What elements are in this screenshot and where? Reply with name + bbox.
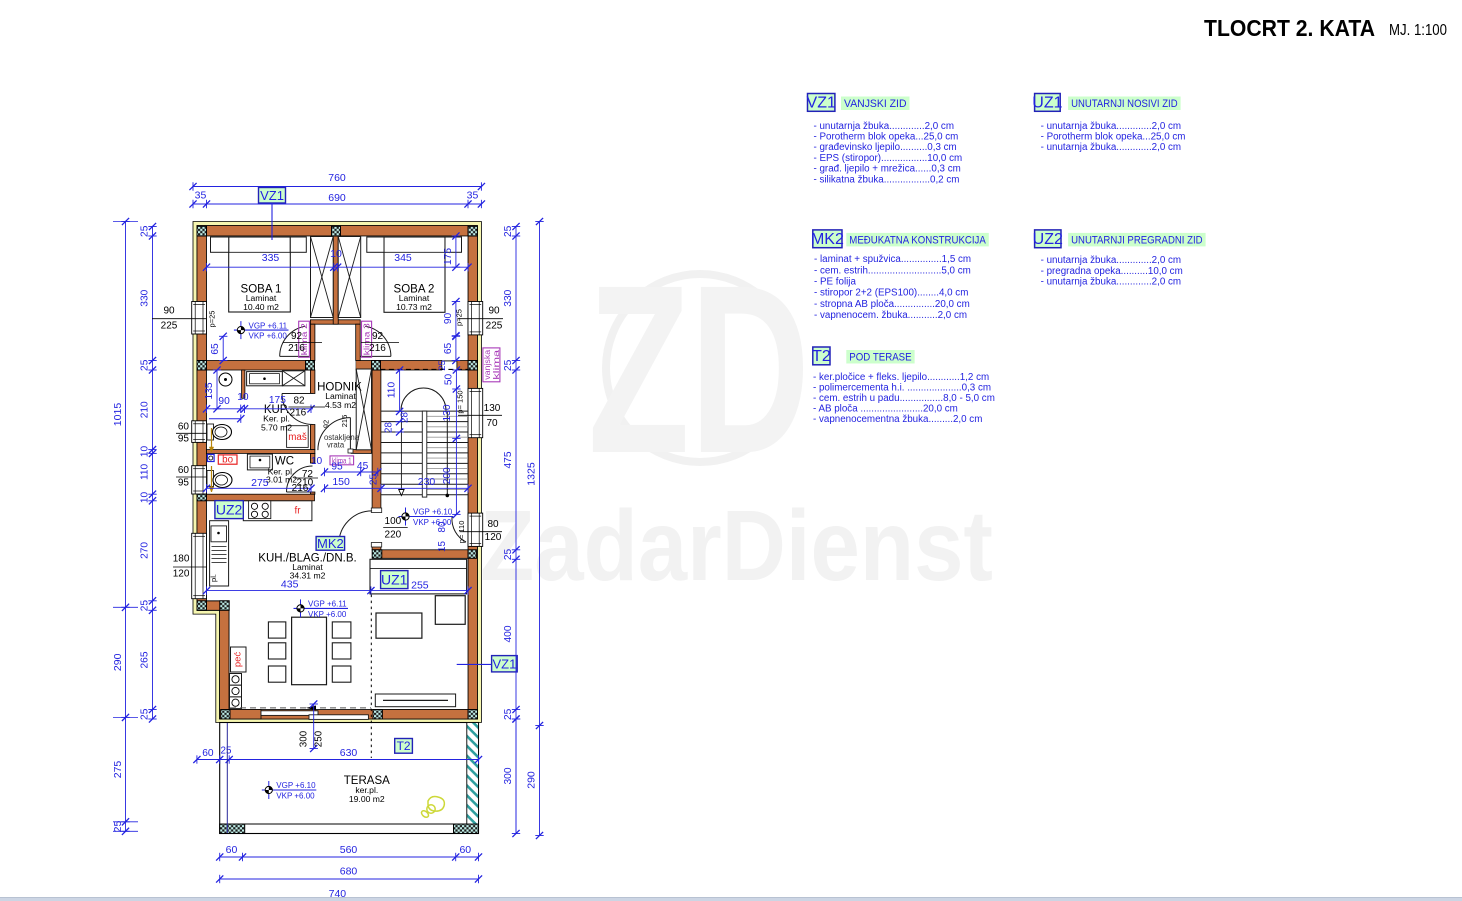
svg-text:25: 25: [139, 708, 150, 720]
svg-text:10: 10: [330, 248, 342, 260]
svg-text:VKP +6.00: VKP +6.00: [308, 610, 347, 619]
svg-text:25: 25: [221, 746, 232, 757]
svg-text:290: 290: [525, 771, 537, 789]
svg-text:VZ1: VZ1: [807, 95, 836, 112]
svg-text:UZ2: UZ2: [1033, 231, 1063, 248]
svg-text:VANJSKI ZID: VANJSKI ZID: [844, 98, 907, 110]
svg-text:330: 330: [139, 289, 150, 306]
svg-text:28: 28: [384, 422, 395, 433]
svg-text:216: 216: [340, 415, 349, 428]
svg-text:MJ. 1:100: MJ. 1:100: [1389, 22, 1447, 39]
svg-text:300: 300: [503, 767, 514, 784]
svg-text:VKP +6.00: VKP +6.00: [276, 791, 315, 800]
svg-text:150: 150: [332, 476, 350, 488]
svg-text:TLOCRT 2. KATA: TLOCRT 2. KATA: [1204, 15, 1375, 41]
svg-text:maš: maš: [288, 432, 307, 443]
svg-text:15: 15: [437, 541, 448, 552]
svg-text:275: 275: [112, 761, 124, 779]
svg-text:25: 25: [437, 360, 448, 371]
svg-text:vrata: vrata: [327, 441, 345, 450]
svg-text:UNUTARNJI PREGRADNI ZID: UNUTARNJI PREGRADNI ZID: [1071, 235, 1203, 247]
svg-text:135: 135: [204, 382, 215, 399]
svg-text:290: 290: [112, 653, 124, 671]
svg-text:65: 65: [443, 343, 454, 355]
svg-text:35: 35: [467, 190, 479, 202]
svg-text:4.53 m2: 4.53 m2: [325, 400, 356, 410]
svg-text:p=25: p=25: [455, 309, 464, 326]
svg-text:230: 230: [418, 476, 436, 488]
svg-text:216: 216: [292, 483, 309, 494]
svg-text:- ker.pločice + fleks. ljepilo: - ker.pločice + fleks. ljepilo..........…: [813, 372, 989, 383]
svg-text:- Porotherm blok opeka...25,0: - Porotherm blok opeka...25,0 cm: [1041, 132, 1186, 143]
svg-text:60: 60: [202, 748, 214, 759]
svg-text:VGP +6.11: VGP +6.11: [249, 321, 288, 330]
svg-text:220: 220: [385, 530, 402, 541]
svg-text:92: 92: [322, 420, 331, 428]
svg-text:216: 216: [369, 343, 386, 354]
svg-text:- unutarnja žbuka.............: - unutarnja žbuka.............2,0 cm: [814, 121, 955, 132]
svg-text:1325: 1325: [525, 462, 537, 486]
svg-text:345: 345: [394, 252, 412, 264]
svg-text:130: 130: [442, 404, 453, 421]
svg-text:VKP +6.00: VKP +6.00: [249, 332, 288, 341]
svg-text:T2: T2: [812, 348, 831, 365]
svg-text:- vapnenocementna žbuka.......: - vapnenocementna žbuka.........2,0 cm: [813, 414, 982, 425]
svg-text:25: 25: [503, 225, 514, 237]
svg-text:28: 28: [400, 412, 411, 423]
svg-text:175: 175: [269, 395, 286, 406]
svg-text:peć: peć: [233, 652, 244, 668]
svg-text:200: 200: [442, 467, 453, 484]
svg-text:- građevinsko ljepilo.........: - građevinsko ljepilo..........0,3 cm: [814, 142, 957, 153]
svg-text:90: 90: [443, 313, 454, 325]
svg-text:60: 60: [178, 465, 190, 476]
svg-text:p= 110: p= 110: [457, 521, 466, 544]
svg-text:25: 25: [139, 359, 150, 371]
svg-text:100: 100: [385, 516, 402, 527]
svg-text:- unutarnja žbuka.............: - unutarnja žbuka.............2,0 cm: [1041, 142, 1182, 153]
svg-text:80: 80: [487, 519, 499, 530]
svg-text:475: 475: [503, 451, 514, 468]
svg-text:10.40 m2: 10.40 m2: [243, 302, 279, 312]
svg-text:ZadarDienst: ZadarDienst: [480, 490, 993, 602]
svg-text:10: 10: [139, 446, 150, 458]
svg-text:60: 60: [459, 844, 471, 856]
svg-text:ZD: ZD: [588, 235, 810, 503]
svg-text:- PE folija: - PE folija: [814, 277, 856, 288]
svg-text:335: 335: [262, 252, 280, 264]
svg-text:UZ1: UZ1: [381, 572, 408, 588]
svg-text:UNUTARNJI NOSIVI ZID: UNUTARNJI NOSIVI ZID: [1071, 98, 1178, 110]
svg-text:T2: T2: [397, 739, 411, 753]
svg-text:90: 90: [163, 306, 175, 317]
svg-text:10: 10: [237, 392, 249, 403]
svg-text:- unutarnja žbuka.............: - unutarnja žbuka.............2,0 cm: [1041, 277, 1182, 288]
svg-text:95: 95: [178, 434, 190, 445]
svg-text:92: 92: [372, 331, 384, 342]
svg-text:225: 225: [486, 321, 503, 332]
svg-text:- vapnenocem. žbuka...........: - vapnenocem. žbuka...........2,0 cm: [814, 310, 967, 321]
svg-text:216: 216: [288, 343, 305, 354]
svg-text:- unutarnja žbuka.............: - unutarnja žbuka.............2,0 cm: [1041, 121, 1182, 132]
svg-text:25: 25: [503, 708, 514, 720]
svg-text:180: 180: [173, 554, 190, 565]
svg-text:klima: klima: [492, 349, 501, 380]
svg-text:UZ1: UZ1: [1032, 95, 1062, 112]
svg-text:50: 50: [443, 374, 454, 386]
svg-text:210: 210: [139, 401, 150, 418]
svg-text:VGP +6.10: VGP +6.10: [276, 781, 316, 790]
svg-text:UZ2: UZ2: [216, 502, 243, 518]
svg-text:110: 110: [139, 463, 150, 480]
svg-text:vanjska: vanjska: [483, 349, 492, 379]
svg-text:82: 82: [293, 396, 305, 407]
svg-text:120: 120: [173, 568, 190, 579]
svg-text:10: 10: [139, 492, 150, 504]
svg-text:90: 90: [488, 306, 500, 317]
svg-text:- pregradna opeka..........10,: - pregradna opeka..........10,0 cm: [1041, 266, 1183, 277]
svg-text:- cem. estrih.................: - cem. estrih...........................…: [814, 265, 971, 276]
svg-text:65: 65: [210, 343, 221, 355]
svg-text:fr: fr: [295, 506, 302, 517]
svg-text:35: 35: [195, 190, 207, 202]
svg-text:265: 265: [139, 651, 150, 668]
svg-text:80: 80: [437, 521, 448, 532]
svg-text:255: 255: [411, 579, 429, 591]
svg-text:1015: 1015: [112, 403, 124, 427]
svg-text:25: 25: [503, 549, 514, 561]
svg-text:275: 275: [251, 477, 269, 489]
svg-text:- građ. ljepilo + mrežica.....: - građ. ljepilo + mrežica......0,3 cm: [814, 164, 961, 175]
svg-text:MK2: MK2: [317, 536, 344, 551]
svg-text:- stropna AB ploča............: - stropna AB ploča...............20,0 cm: [814, 299, 970, 310]
svg-text:92: 92: [291, 331, 303, 342]
svg-text:- EPS (stiropor)..............: - EPS (stiropor).................10,0 cm: [814, 153, 963, 164]
svg-text:25: 25: [139, 225, 150, 237]
svg-text:19.00 m2: 19.00 m2: [349, 794, 385, 804]
svg-text:25: 25: [112, 821, 124, 833]
svg-text:225: 225: [161, 321, 178, 332]
svg-text:- unutarnja žbuka.............: - unutarnja žbuka.............2,0 cm: [1041, 255, 1182, 266]
svg-text:p= 150: p= 150: [456, 390, 465, 413]
svg-text:5.70 m2: 5.70 m2: [261, 423, 292, 433]
svg-text:70: 70: [486, 418, 498, 429]
svg-text:MEĐUKATNA KONSTRUKCIJA: MEĐUKATNA KONSTRUKCIJA: [849, 235, 986, 247]
svg-text:130: 130: [484, 403, 501, 414]
svg-text:- silikatna žbuka.............: - silikatna žbuka.................0,2 cm: [814, 174, 960, 185]
svg-text:175: 175: [443, 248, 454, 265]
svg-text:60: 60: [178, 422, 190, 433]
svg-text:60: 60: [226, 844, 238, 856]
svg-text:680: 680: [340, 866, 358, 878]
svg-text:300: 300: [299, 730, 310, 747]
svg-text:- cem. estrih u padu..........: - cem. estrih u padu................8,0 …: [813, 393, 995, 404]
svg-text:760: 760: [328, 172, 346, 184]
svg-text:45: 45: [357, 461, 369, 472]
svg-text:630: 630: [340, 747, 358, 759]
svg-text:VZ1: VZ1: [260, 188, 284, 203]
svg-text:270: 270: [139, 542, 150, 559]
svg-text:- AB ploča ...................: - AB ploča .......................20,0 c…: [813, 403, 958, 414]
svg-text:- Porotherm blok opeka...25,0: - Porotherm blok opeka...25,0 cm: [814, 132, 959, 143]
svg-text:400: 400: [503, 625, 514, 642]
svg-text:120: 120: [485, 532, 502, 543]
svg-text:25: 25: [503, 359, 514, 371]
svg-text:- stiropor 2+2 (EPS100).......: - stiropor 2+2 (EPS100)........4,0 cm: [814, 288, 968, 299]
svg-text:110: 110: [386, 382, 397, 399]
svg-text:95: 95: [178, 478, 190, 489]
svg-text:10: 10: [311, 456, 323, 467]
svg-text:VGP +6.10: VGP +6.10: [413, 508, 453, 517]
svg-text:p=25: p=25: [208, 311, 217, 328]
svg-text:690: 690: [328, 192, 346, 204]
svg-text:250: 250: [314, 730, 325, 747]
svg-text:bo: bo: [222, 454, 233, 465]
svg-text:- laminat + spužvica..........: - laminat + spužvica...............1,5 c…: [814, 254, 971, 265]
svg-text:VGP +6.11: VGP +6.11: [308, 600, 347, 609]
svg-text:POD TERASE: POD TERASE: [849, 352, 911, 364]
svg-text:MK2: MK2: [811, 231, 844, 248]
svg-text:25: 25: [369, 474, 380, 486]
svg-text:25: 25: [139, 600, 150, 612]
svg-text:- polimercementa h.i. ........: - polimercementa h.i. ..................…: [813, 382, 991, 393]
svg-text:435: 435: [281, 579, 299, 591]
svg-text:216: 216: [290, 407, 307, 418]
svg-text:330: 330: [503, 289, 514, 306]
svg-text:pl.: pl.: [209, 574, 218, 582]
svg-text:560: 560: [340, 844, 358, 856]
svg-text:95: 95: [331, 462, 343, 473]
svg-text:10.73 m2: 10.73 m2: [396, 302, 432, 312]
svg-text:VZ1: VZ1: [492, 656, 516, 671]
